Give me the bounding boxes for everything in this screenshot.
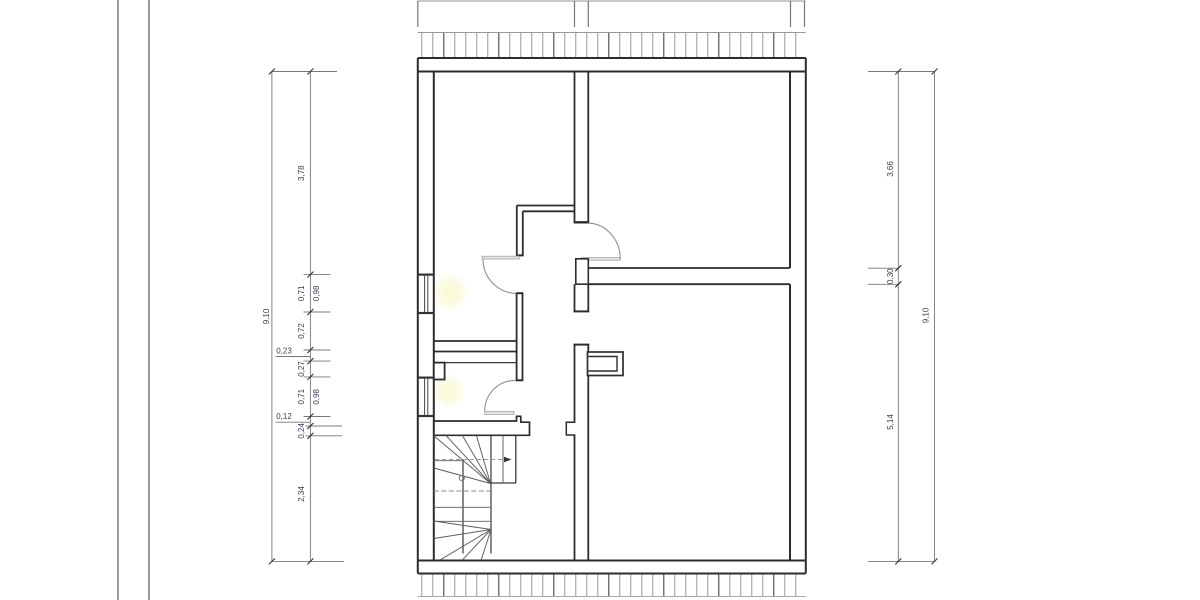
- svg-text:0,71: 0,71: [297, 285, 306, 301]
- svg-text:5,14: 5,14: [886, 414, 895, 430]
- svg-text:0,23: 0,23: [276, 347, 292, 356]
- svg-text:3,78: 3,78: [297, 165, 306, 181]
- svg-text:0,72: 0,72: [297, 323, 306, 339]
- svg-text:2,34: 2,34: [297, 486, 306, 502]
- svg-text:9,10: 9,10: [262, 308, 271, 324]
- svg-text:0,98: 0,98: [312, 388, 321, 404]
- svg-text:0,24: 0,24: [297, 423, 306, 439]
- svg-text:0,71: 0,71: [297, 388, 306, 404]
- svg-text:0,98: 0,98: [312, 285, 321, 301]
- svg-text:9,10: 9,10: [922, 307, 931, 323]
- svg-text:0,27: 0,27: [297, 361, 306, 377]
- svg-text:3,66: 3,66: [886, 161, 895, 177]
- svg-text:0,12: 0,12: [276, 412, 292, 421]
- svg-text:0,30: 0,30: [886, 268, 895, 284]
